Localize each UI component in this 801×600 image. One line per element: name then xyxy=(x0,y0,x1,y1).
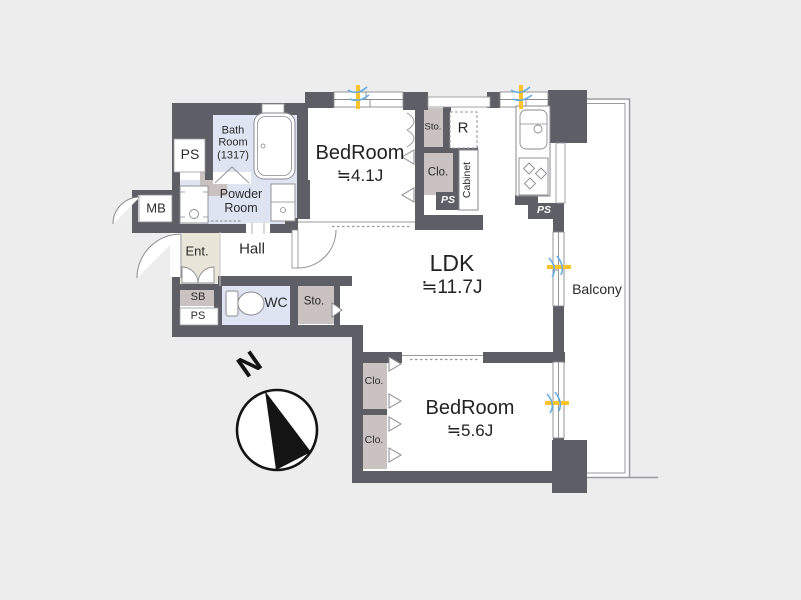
bedroom1-size: ≒4.1J xyxy=(316,166,405,186)
label-refrigerator: R xyxy=(458,121,469,138)
label-ps-entrance: PS xyxy=(191,310,206,322)
top-recess-wall xyxy=(428,97,490,107)
kitchen-side-wall xyxy=(556,143,565,203)
label-ps-closet: PS xyxy=(441,195,455,207)
bedroom2-size: ≒5.6J xyxy=(426,421,515,441)
label-closet-top: Clo. xyxy=(428,167,448,180)
kitchen-counter xyxy=(516,106,550,196)
label-closet-bottom-1: Clo. xyxy=(365,376,384,388)
label-storage-hall: Sto. xyxy=(304,296,324,309)
toilet xyxy=(226,291,264,316)
bedroom1-name: BedRoom xyxy=(316,142,405,166)
label-bedroom1: BedRoom ≒4.1J xyxy=(316,142,405,186)
label-hall: Hall xyxy=(239,242,265,259)
stove xyxy=(519,158,548,195)
label-entrance: Ent. xyxy=(185,245,208,260)
label-bath-room: Bath Room (1317) xyxy=(206,125,260,162)
window-bedroom1-top xyxy=(334,92,403,107)
label-powder-room: Powder Room xyxy=(202,187,280,215)
label-closet-bottom-2: Clo. xyxy=(365,435,384,447)
powder-door-opening xyxy=(246,223,270,234)
label-ps-kitchen: PS xyxy=(537,205,551,217)
label-balcony: Balcony xyxy=(572,282,622,298)
label-wc: WC xyxy=(264,295,287,311)
sliding-door-bedroom2 xyxy=(402,352,483,362)
label-cabinet: Cabinet xyxy=(462,162,474,198)
compass xyxy=(237,390,317,470)
label-ldk: LDK ≒11.7J xyxy=(421,250,482,300)
label-sb: SB xyxy=(191,291,206,303)
bathtub xyxy=(254,113,295,179)
floor-plan-drawing xyxy=(0,0,801,600)
label-storage-top: Sto. xyxy=(425,123,442,134)
bedroom2-name: BedRoom xyxy=(426,397,515,421)
floor-plan-canvas: PS Bath Room (1317) Powder Room MB Ent. … xyxy=(0,0,801,600)
kitchen-sink xyxy=(520,110,547,149)
ldk-name: LDK xyxy=(421,250,482,277)
window-bedroom2 xyxy=(553,362,564,438)
label-mb: MB xyxy=(146,202,166,217)
label-bedroom2: BedRoom ≒5.6J xyxy=(426,397,515,441)
label-ps-top-left: PS xyxy=(181,147,200,163)
ldk-size: ≒11.7J xyxy=(421,277,482,299)
sliding-door-bedroom1 xyxy=(298,219,415,229)
entry-door xyxy=(137,233,182,278)
